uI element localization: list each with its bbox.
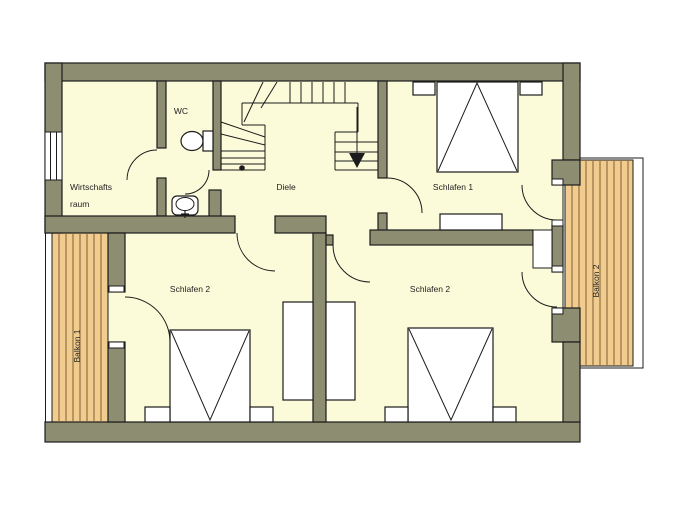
label-wc: WC: [174, 106, 188, 116]
wall-basin-stub: [209, 190, 221, 217]
floor-plan-svg: Wirtschafts raum WC Diele Schlafen 1 Sch…: [0, 0, 700, 500]
label-balkon1: Balkon 1: [72, 329, 82, 362]
stair-start-dot-icon: [239, 165, 245, 171]
outer-wall-right-bottom: [563, 342, 580, 422]
label-wirtschaftsraum-2: raum: [70, 199, 89, 209]
washbasin: [172, 196, 198, 218]
shaft-block: [533, 230, 552, 268]
door-jamb: [552, 179, 563, 185]
nightstand: [145, 407, 170, 422]
nightstand: [413, 82, 435, 95]
wall-diele-south-west: [45, 216, 235, 233]
door-jamb: [109, 286, 124, 292]
label-schlafen2-right: Schlafen 2: [410, 284, 450, 294]
wall-wc-stairwell: [213, 81, 221, 170]
wall-schlafen1-schlafen2: [370, 230, 533, 245]
nightstand: [385, 407, 408, 422]
door-jamb: [552, 308, 563, 314]
toilet: [181, 131, 213, 151]
wall-balcony1-lower: [108, 342, 125, 422]
bed-schlafen1: [437, 82, 518, 172]
wardrobe-schlafen2-right: [326, 302, 355, 400]
nightstand: [520, 82, 542, 95]
wall-bedroom-divider: [313, 233, 326, 422]
wall-wirtschaftsraum-wc-upper: [157, 81, 166, 148]
wardrobe-schlafen2-left: [283, 302, 313, 400]
bed-schlafen2-left: [170, 330, 250, 422]
balcony-1-edge-strip: [46, 233, 52, 422]
window-wirtschaftsraum: [45, 132, 62, 180]
right-wall-pillar-2: [552, 225, 563, 272]
bed-schlafen2-right: [408, 328, 493, 422]
outer-wall-right-top: [563, 63, 580, 160]
wall-stairwell-schlafen1: [378, 81, 387, 178]
outer-wall-bottom: [45, 422, 580, 442]
wall-balcony1-upper: [108, 233, 125, 292]
door-jamb: [552, 220, 563, 226]
dresser-schlafen1: [440, 214, 502, 230]
wall-door-jamb-nub: [326, 235, 333, 245]
floor-plan-page: Wirtschafts raum WC Diele Schlafen 1 Sch…: [0, 0, 700, 500]
nightstand: [250, 407, 273, 422]
label-balkon2: Balkon 2: [591, 264, 601, 297]
door-jamb: [109, 342, 124, 348]
label-wirtschaftsraum: Wirtschafts: [70, 182, 112, 192]
outer-wall-top: [45, 63, 580, 81]
wall-diele-south-center: [275, 216, 326, 233]
balcony-1: [46, 233, 109, 422]
door-jamb: [552, 266, 563, 272]
label-schlafen1: Schlafen 1: [433, 182, 473, 192]
nightstand: [493, 407, 516, 422]
label-diele: Diele: [276, 182, 296, 192]
label-schlafen2-left: Schlafen 2: [170, 284, 210, 294]
wall-wirtschaftsraum-wc-lower: [157, 178, 166, 216]
